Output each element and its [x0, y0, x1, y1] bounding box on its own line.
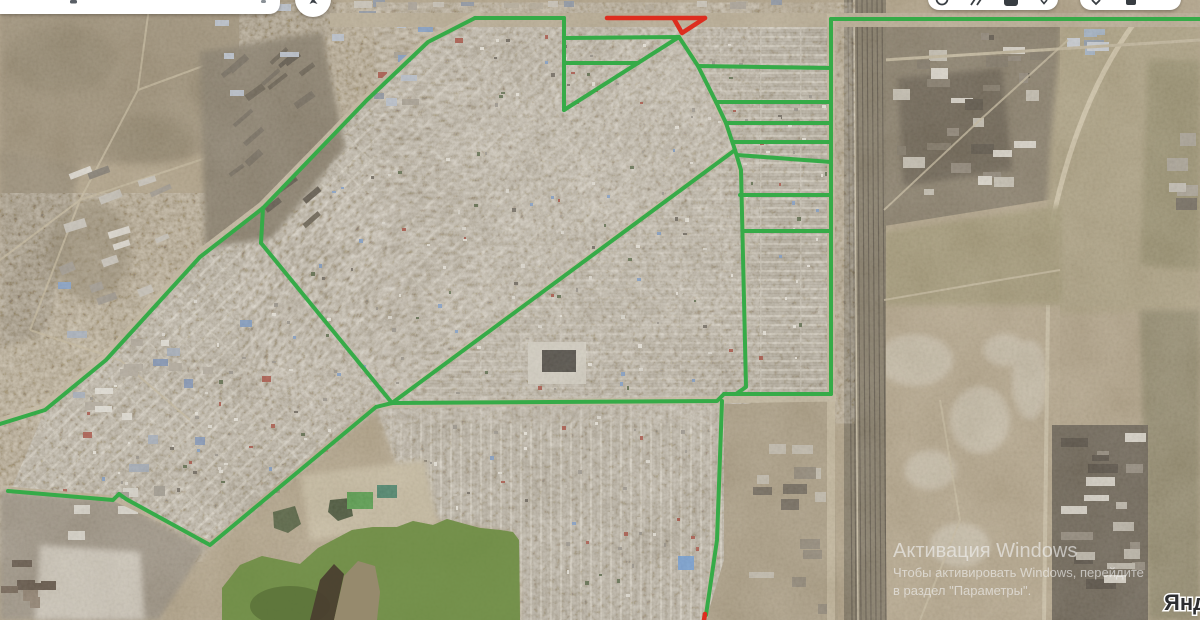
svg-text:Яндекс: Яндекс — [1164, 590, 1200, 615]
